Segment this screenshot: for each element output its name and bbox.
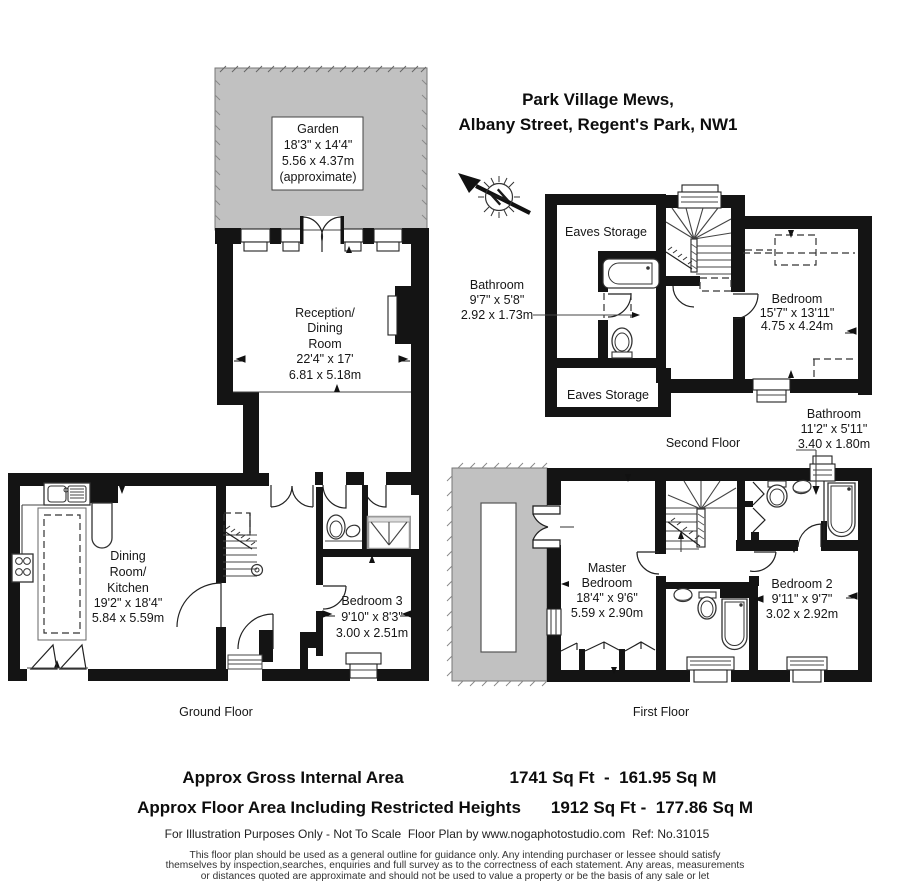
svg-text:Dining: Dining: [110, 549, 145, 563]
svg-text:Approx Gross Internal Area: Approx Gross Internal Area: [182, 768, 404, 787]
svg-text:or distances quoted are approx: or distances quoted are approximate and …: [201, 871, 710, 882]
svg-text:Bedroom 2: Bedroom 2: [771, 577, 832, 591]
svg-text:3.00 x 2.51m: 3.00 x 2.51m: [336, 626, 408, 640]
svg-text:Park Village Mews,: Park Village Mews,: [522, 90, 674, 109]
svg-text:Bedroom: Bedroom: [772, 292, 823, 306]
svg-text:Bedroom 3: Bedroom 3: [341, 594, 402, 608]
svg-text:18'3" x 14'4": 18'3" x 14'4": [284, 138, 353, 152]
svg-text:Garden: Garden: [297, 122, 339, 136]
svg-text:9'11" x 9'7": 9'11" x 9'7": [772, 592, 833, 606]
svg-text:3.40 x 1.80m: 3.40 x 1.80m: [798, 437, 870, 451]
svg-text:5.56 x 4.37m: 5.56 x 4.37m: [282, 154, 354, 168]
svg-text:Bedroom: Bedroom: [582, 576, 633, 590]
svg-text:(approximate): (approximate): [279, 170, 356, 184]
svg-text:4.75 x 4.24m: 4.75 x 4.24m: [761, 319, 833, 333]
svg-text:Dining: Dining: [307, 321, 342, 335]
svg-text:Master: Master: [588, 561, 626, 575]
svg-text:1912 Sq Ft - 177.86 Sq M: 1912 Sq Ft - 177.86 Sq M: [551, 798, 753, 817]
svg-text:Kitchen: Kitchen: [107, 581, 149, 595]
svg-text:Bathroom: Bathroom: [807, 407, 861, 421]
svg-text:First Floor: First Floor: [633, 705, 689, 719]
svg-text:themselves by inspection,searc: themselves by inspection,searches, enqui…: [166, 860, 745, 871]
svg-text:15'7" x 13'11": 15'7" x 13'11": [760, 306, 835, 320]
svg-text:Approx Floor Area Including Re: Approx Floor Area Including Restricted H…: [137, 798, 521, 817]
svg-text:Room/: Room/: [110, 565, 147, 579]
svg-text:18'4" x 9'6": 18'4" x 9'6": [576, 591, 638, 605]
svg-text:22'4" x 17': 22'4" x 17': [296, 352, 353, 366]
svg-text:1741 Sq Ft - 161.95 Sq M: 1741 Sq Ft - 161.95 Sq M: [510, 768, 717, 787]
svg-text:9'10" x 8'3": 9'10" x 8'3": [341, 610, 403, 624]
svg-text:Reception/: Reception/: [295, 306, 355, 320]
svg-text:Eaves Storage: Eaves Storage: [565, 225, 647, 239]
svg-text:5.84 x 5.59m: 5.84 x 5.59m: [92, 611, 164, 625]
svg-text:Bathroom: Bathroom: [470, 278, 524, 292]
svg-text:5.59 x 2.90m: 5.59 x 2.90m: [571, 606, 643, 620]
svg-text:Ground Floor: Ground Floor: [179, 705, 253, 719]
svg-text:For Illustration Purposes Only: For Illustration Purposes Only - Not To …: [165, 827, 710, 841]
svg-text:6.81 x 5.18m: 6.81 x 5.18m: [289, 368, 361, 382]
svg-text:3.02 x 2.92m: 3.02 x 2.92m: [766, 607, 838, 621]
svg-text:19'2" x 18'4": 19'2" x 18'4": [94, 596, 163, 610]
svg-text:11'2" x 5'11": 11'2" x 5'11": [801, 422, 868, 436]
svg-text:Albany Street, Regent's Park,: Albany Street, Regent's Park, NW1: [459, 115, 738, 134]
svg-text:9'7" x 5'8": 9'7" x 5'8": [470, 293, 525, 307]
svg-text:Second Floor: Second Floor: [666, 436, 740, 450]
svg-text:Eaves Storage: Eaves Storage: [567, 388, 649, 402]
svg-text:Room: Room: [308, 337, 341, 351]
svg-text:2.92 x 1.73m: 2.92 x 1.73m: [461, 308, 533, 322]
